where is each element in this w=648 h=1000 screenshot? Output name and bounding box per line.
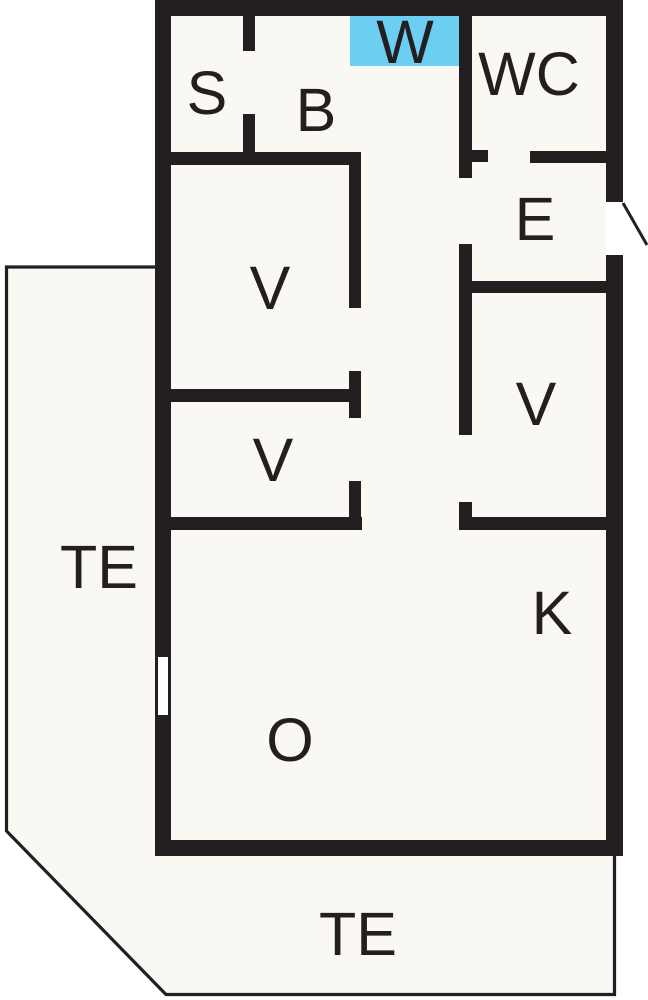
svg-text:E: E — [515, 185, 556, 253]
svg-text:V: V — [250, 254, 291, 322]
svg-text:V: V — [253, 426, 294, 494]
svg-text:WC: WC — [478, 40, 580, 108]
svg-text:V: V — [516, 370, 557, 438]
svg-text:O: O — [266, 706, 313, 774]
svg-text:B: B — [296, 76, 337, 144]
svg-text:W: W — [376, 8, 434, 76]
svg-text:S: S — [187, 59, 228, 127]
svg-text:TE: TE — [319, 900, 397, 968]
svg-text:TE: TE — [60, 533, 138, 601]
svg-text:K: K — [532, 579, 573, 647]
